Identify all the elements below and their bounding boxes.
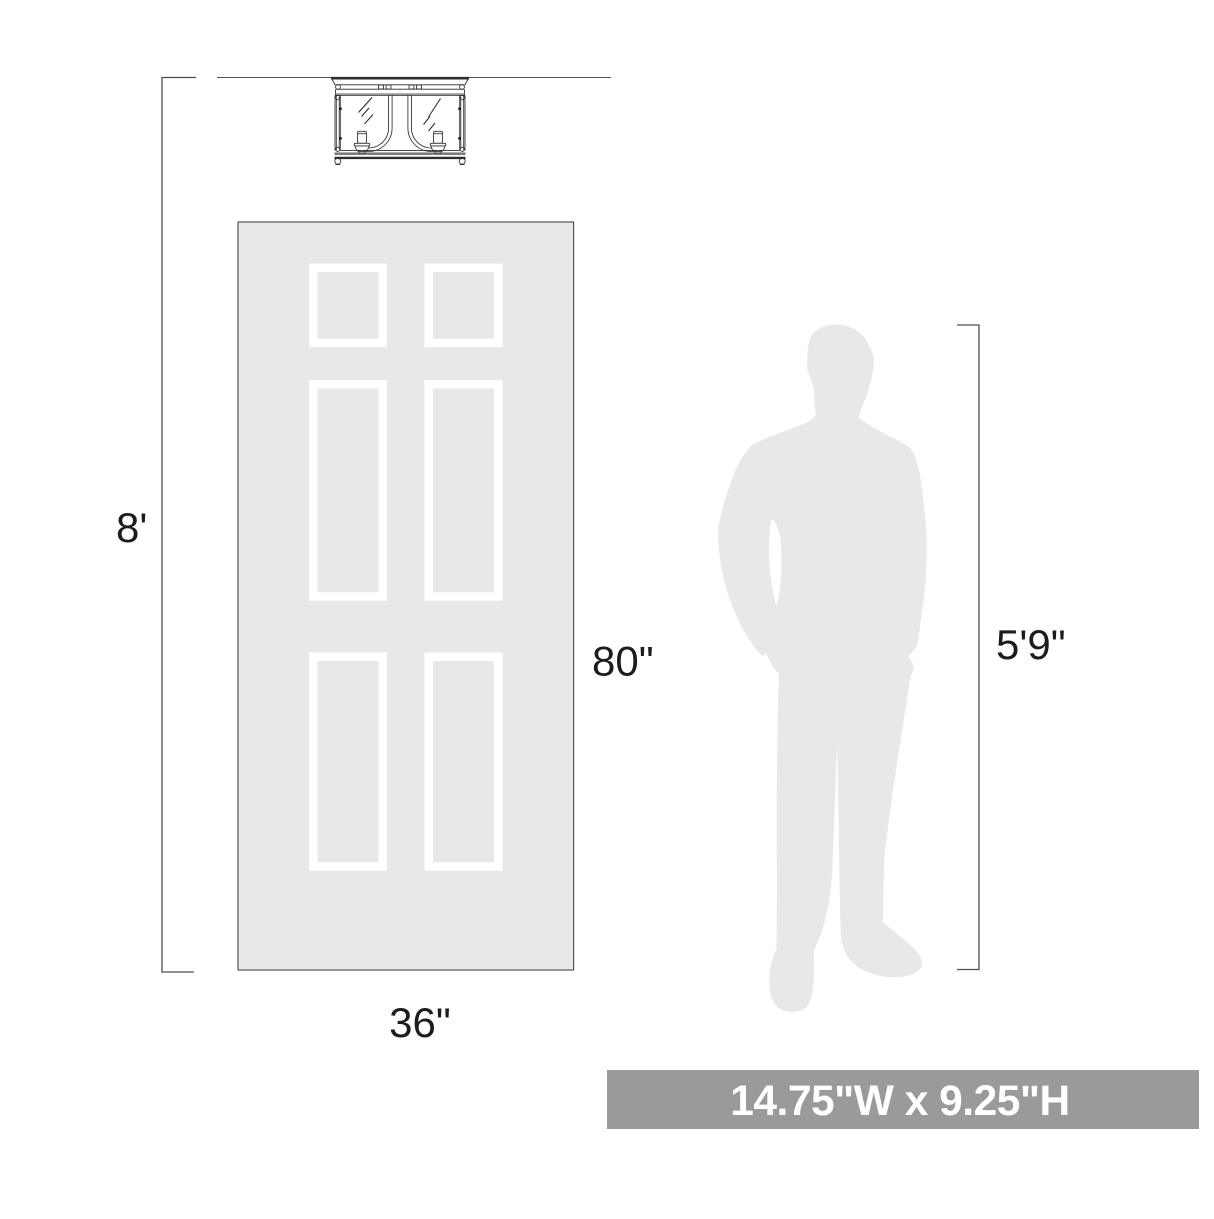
svg-text:5'9": 5'9" [996,621,1066,668]
svg-text:14.75"W x 9.25"H: 14.75"W x 9.25"H [730,1078,1069,1125]
svg-text:8': 8' [116,504,147,551]
svg-text:36": 36" [389,999,451,1046]
svg-text:80": 80" [592,638,654,685]
